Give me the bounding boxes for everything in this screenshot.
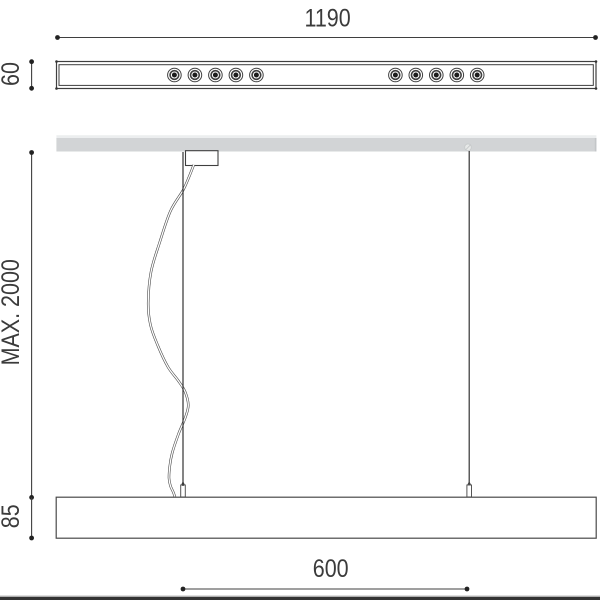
svg-text:60: 60 <box>0 62 24 86</box>
svg-text:85: 85 <box>0 504 24 528</box>
svg-text:1190: 1190 <box>304 4 350 32</box>
svg-text:600: 600 <box>313 555 349 583</box>
svg-text:MAX. 2000: MAX. 2000 <box>0 259 24 365</box>
